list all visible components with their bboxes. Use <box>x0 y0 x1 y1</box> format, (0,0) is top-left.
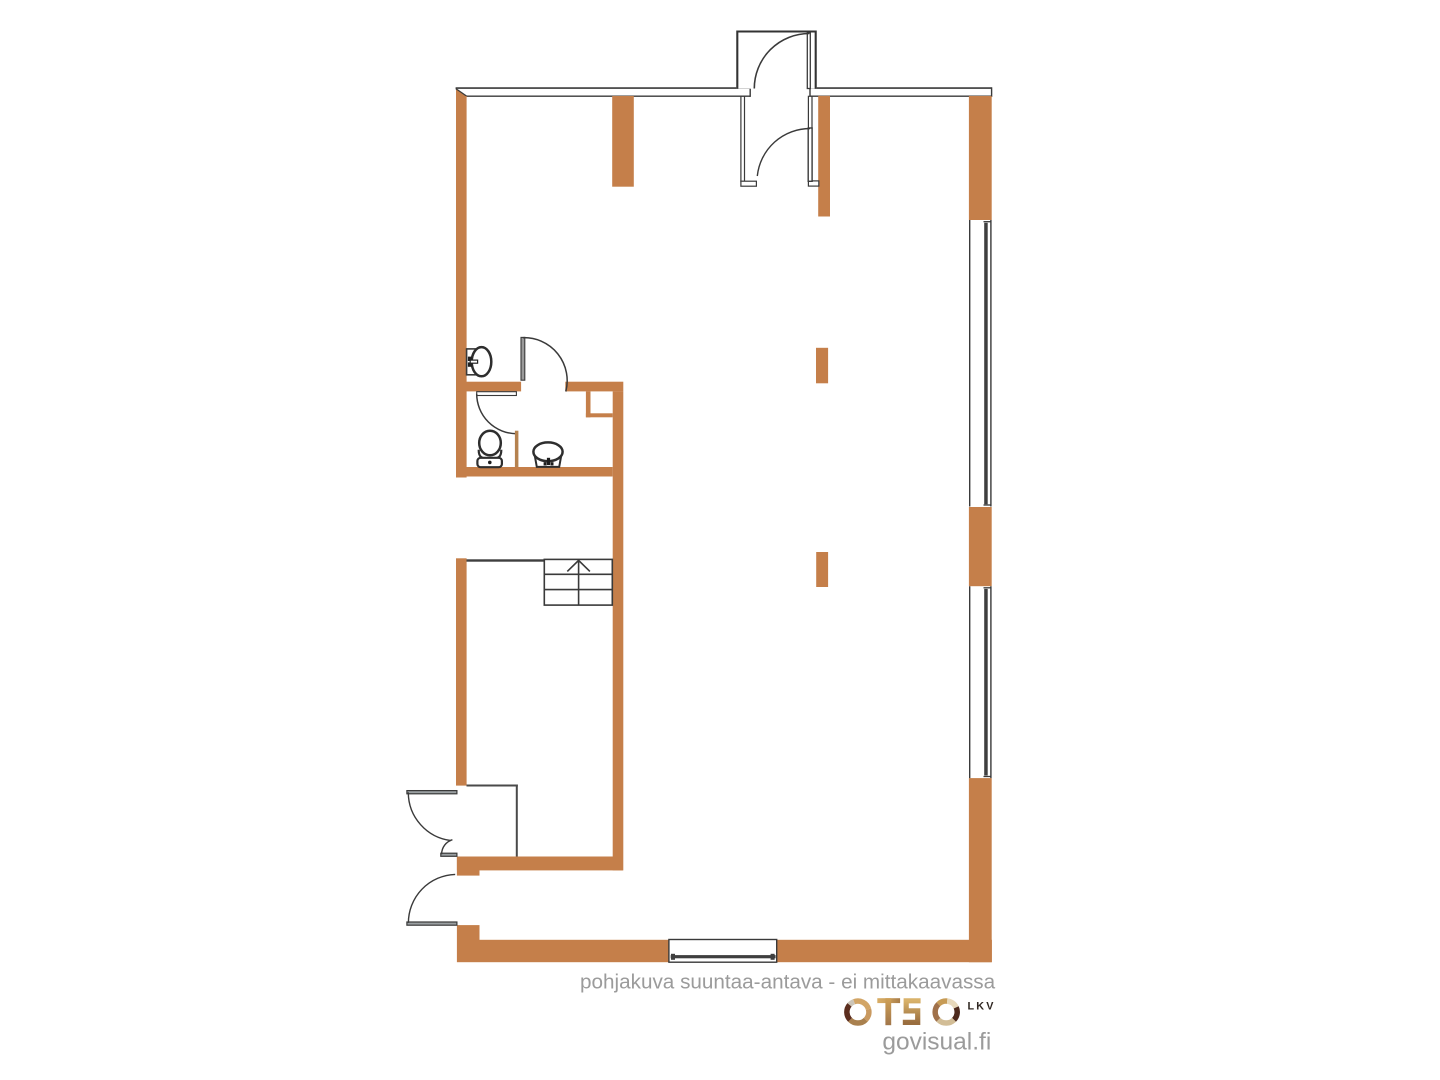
svg-text:LKV: LKV <box>968 1001 996 1013</box>
svg-text:govisual.fi: govisual.fi <box>882 1028 991 1055</box>
svg-text:pohjakuva suuntaa-antava - ei: pohjakuva suuntaa-antava - ei mittakaava… <box>580 971 996 994</box>
